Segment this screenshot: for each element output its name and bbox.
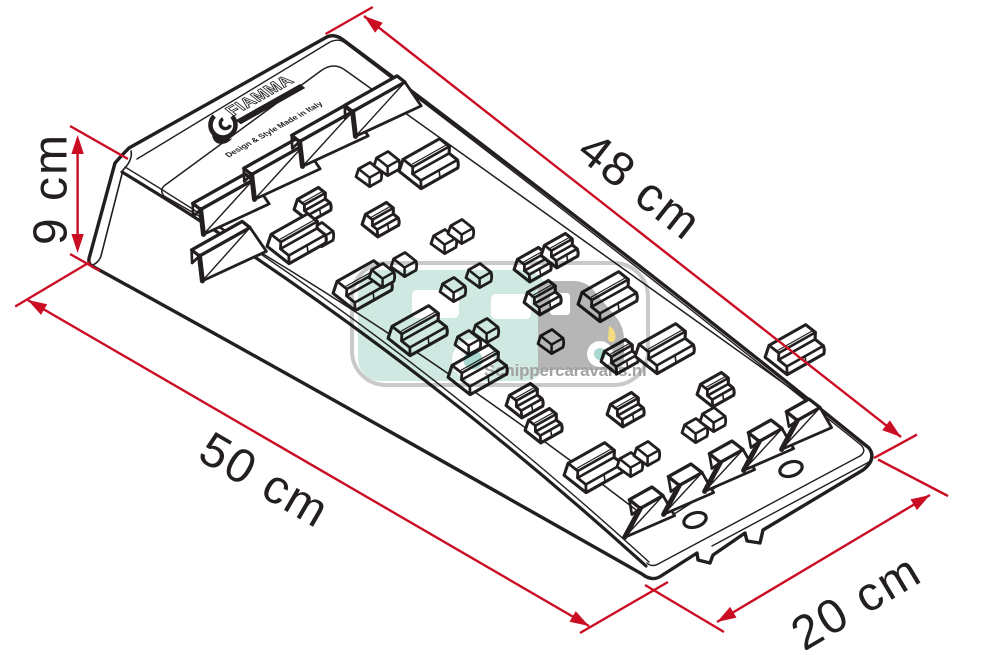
svg-text:Schippercaravans.nl: Schippercaravans.nl — [484, 361, 647, 380]
svg-text:9 cm: 9 cm — [25, 133, 78, 245]
